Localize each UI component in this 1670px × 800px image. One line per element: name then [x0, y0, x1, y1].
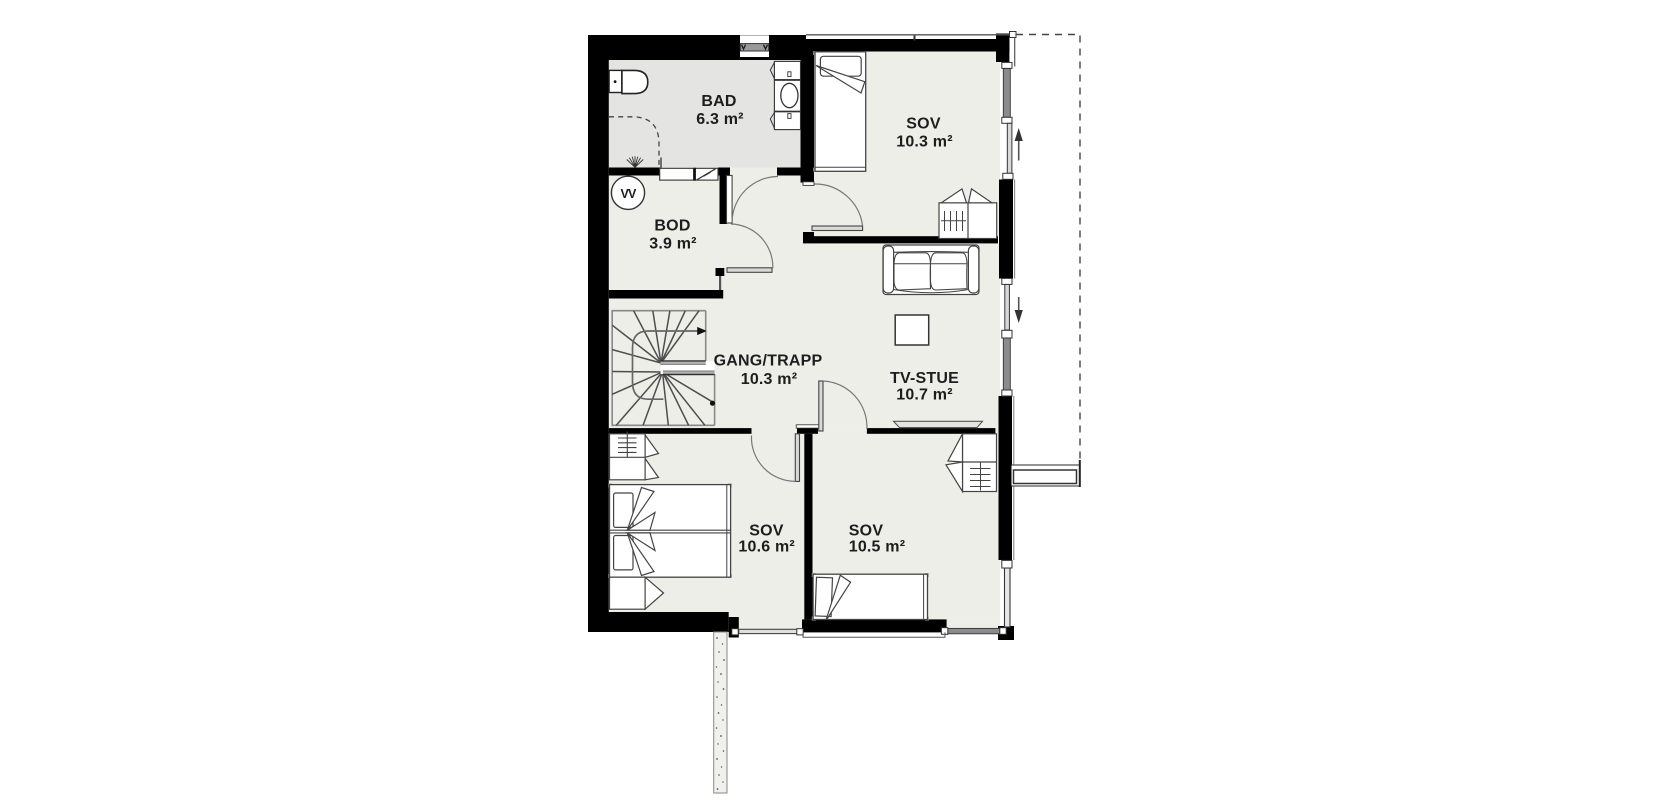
svg-text:6.3 m²: 6.3 m²: [696, 111, 743, 128]
svg-text:BAD: BAD: [701, 93, 736, 110]
svg-text:TV-STUE: TV-STUE: [890, 370, 959, 387]
svg-text:10.3 m²: 10.3 m²: [741, 371, 798, 388]
svg-text:SOV: SOV: [906, 116, 941, 133]
svg-text:10.7 m²: 10.7 m²: [896, 387, 953, 404]
svg-text:10.3 m²: 10.3 m²: [896, 134, 953, 151]
svg-text:10.5 m²: 10.5 m²: [849, 539, 906, 556]
svg-text:SOV: SOV: [849, 523, 884, 540]
svg-text:VV: VV: [620, 187, 637, 201]
svg-text:BOD: BOD: [654, 218, 690, 235]
svg-text:3.9 m²: 3.9 m²: [649, 236, 696, 253]
svg-text:10.6 m²: 10.6 m²: [738, 539, 795, 556]
svg-text:GANG/TRAPP: GANG/TRAPP: [714, 353, 823, 370]
svg-text:SOV: SOV: [749, 523, 784, 540]
